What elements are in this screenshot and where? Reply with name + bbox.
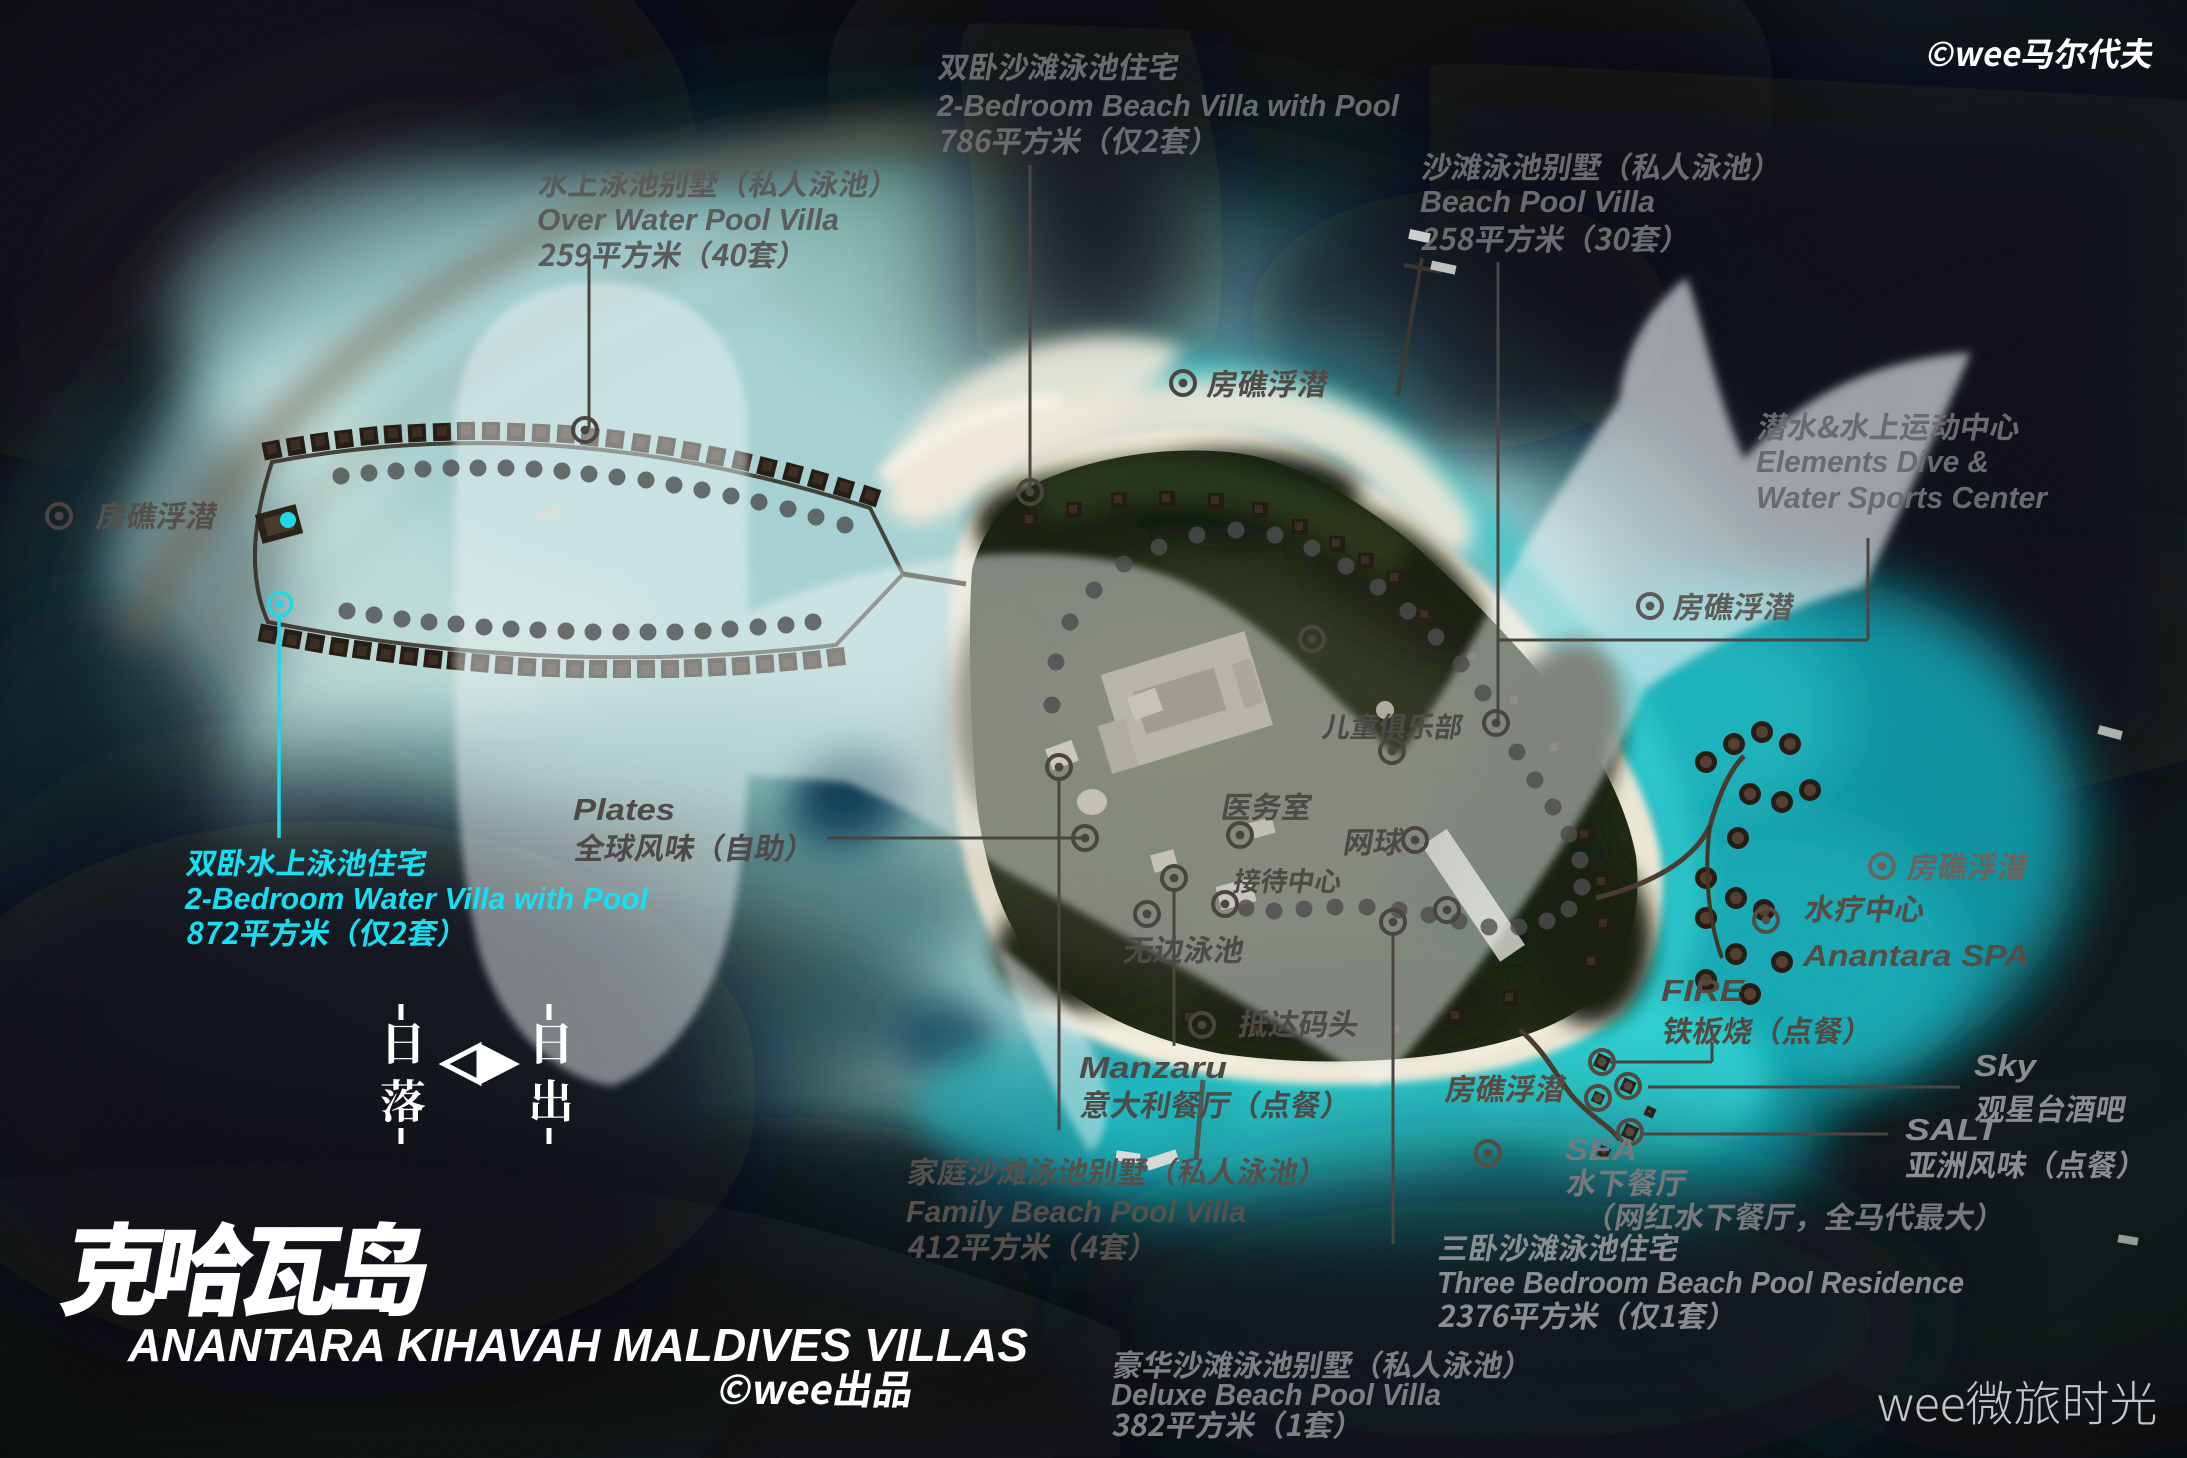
svg-text:Beach Pool Villa: Beach Pool Villa [1420,184,1655,219]
svg-text:Family Beach Pool Villa: Family Beach Pool Villa [906,1194,1246,1229]
svg-text:Elements Dive &: Elements Dive & [1756,444,1989,479]
svg-text:FIRE: FIRE [1661,973,1746,1008]
svg-text:ANANTARA KIHAVAH MALDIVES VILL: ANANTARA KIHAVAH MALDIVES VILLAS [127,1319,1028,1371]
svg-text:Over Water Pool Villa: Over Water Pool Villa [537,202,839,237]
svg-text:SALT: SALT [1905,1112,2003,1147]
svg-text:2-Bedroom Water Villa with Poo: 2-Bedroom Water Villa with Pool [184,881,649,916]
svg-text:Plates: Plates [573,792,675,827]
svg-text:SEA: SEA [1565,1132,1637,1167]
svg-text:Anantara SPA: Anantara SPA [1802,938,2029,973]
svg-text:Three Bedroom Beach Pool Resid: Three Bedroom Beach Pool Residence [1437,1265,1964,1300]
svg-text:Water Sports Center: Water Sports Center [1756,480,2049,515]
svg-text:Deluxe Beach Pool Villa: Deluxe Beach Pool Villa [1111,1377,1441,1412]
svg-text:Manzaru: Manzaru [1079,1050,1227,1085]
svg-text:2-Bedroom Beach Villa with Poo: 2-Bedroom Beach Villa with Pool [936,88,1400,123]
svg-text:Sky: Sky [1974,1048,2038,1083]
